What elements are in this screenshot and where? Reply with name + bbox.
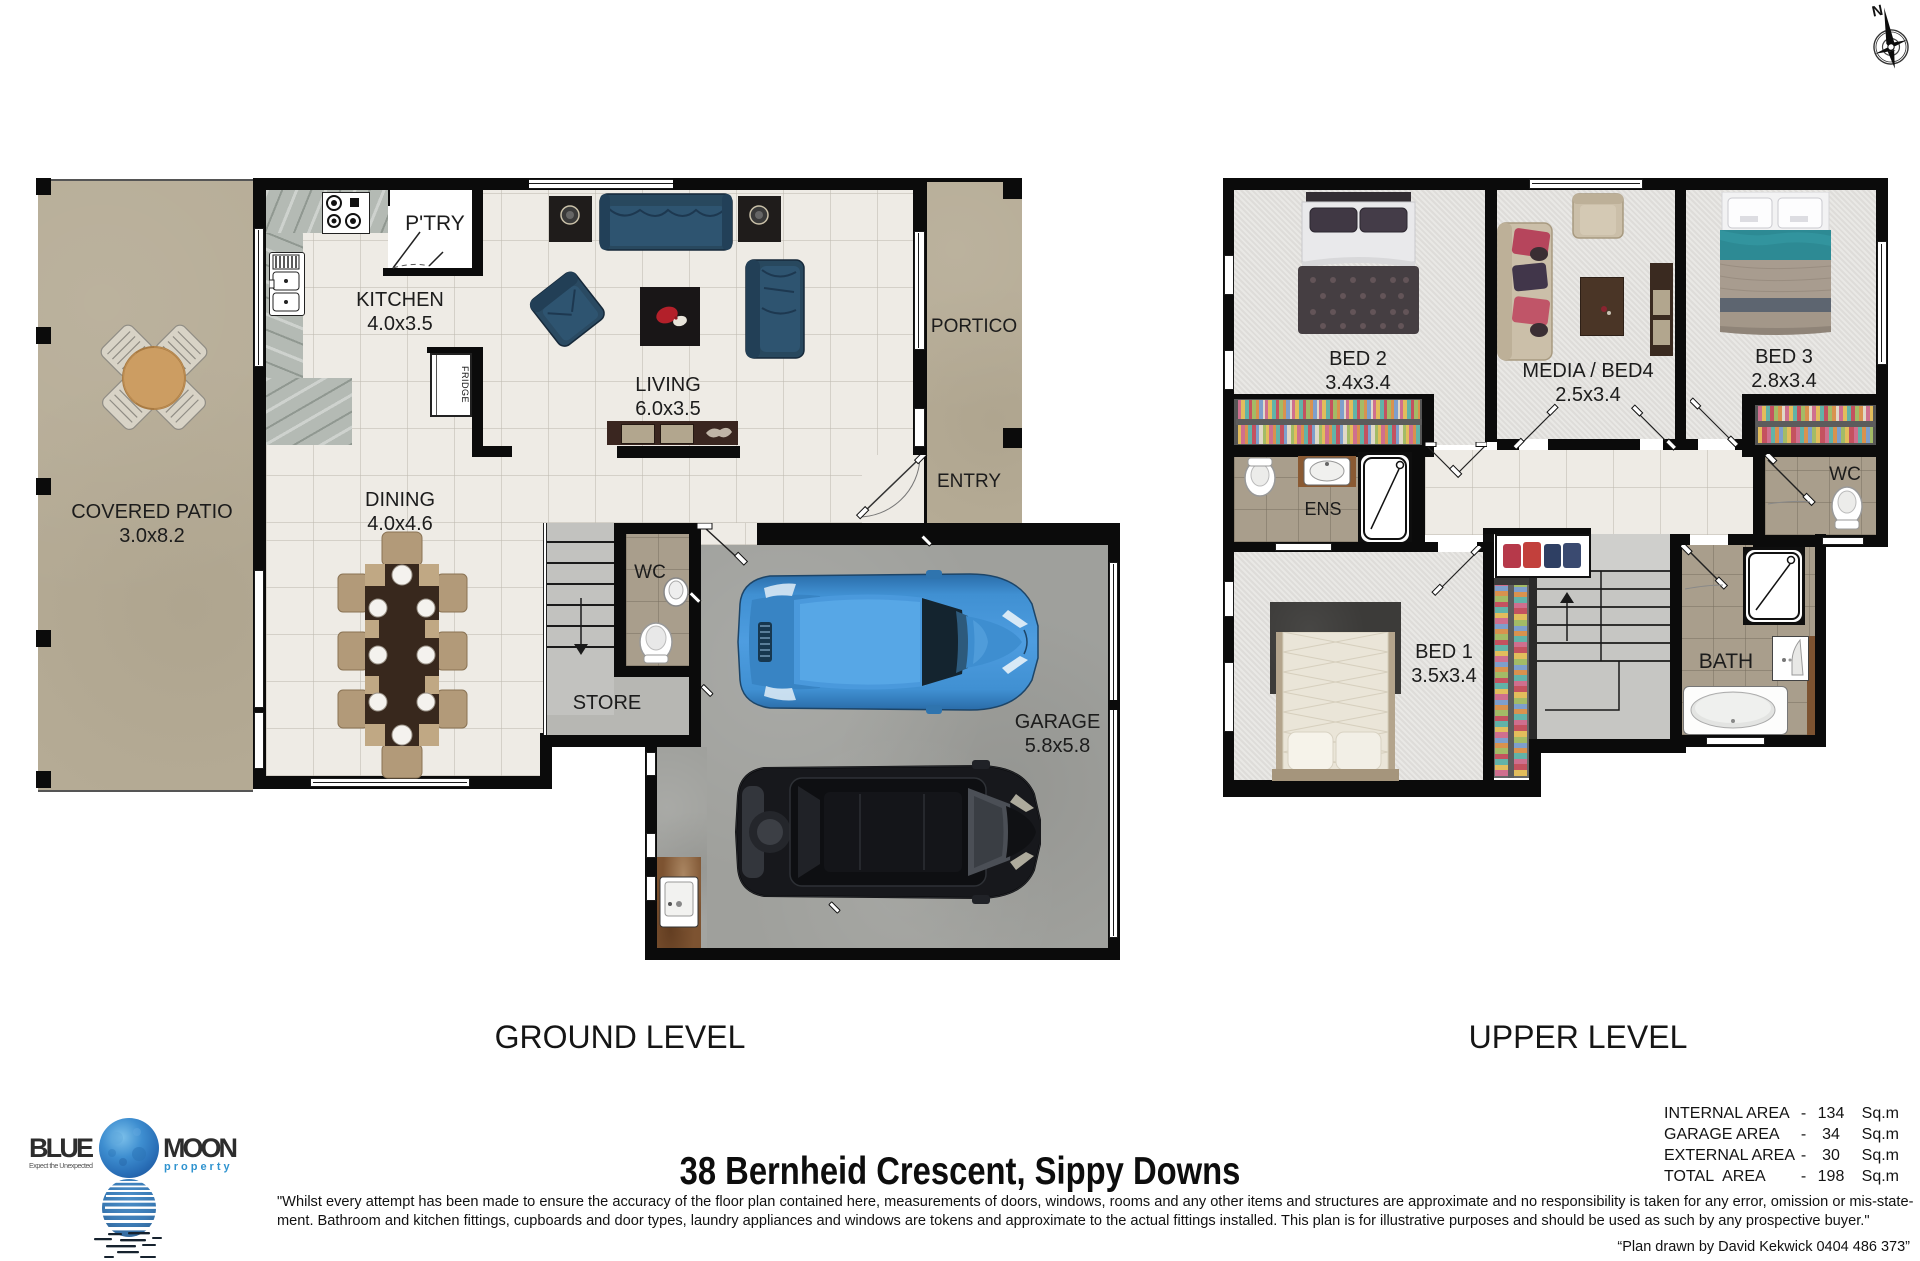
svg-text:MOON: MOON: [163, 1133, 238, 1163]
svg-text:property: property: [164, 1161, 233, 1173]
svg-text:Expect the Unexpected: Expect the Unexpected: [29, 1161, 93, 1170]
svg-text:BLUE: BLUE: [29, 1133, 94, 1163]
svg-text:N: N: [1870, 2, 1884, 21]
